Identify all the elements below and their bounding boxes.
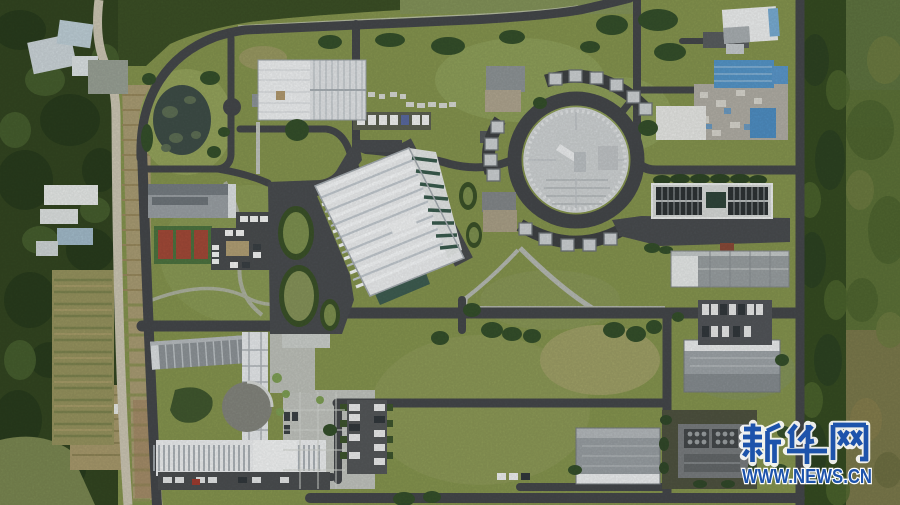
svg-text:WWW.NEWS.CN: WWW.NEWS.CN <box>742 465 872 488</box>
